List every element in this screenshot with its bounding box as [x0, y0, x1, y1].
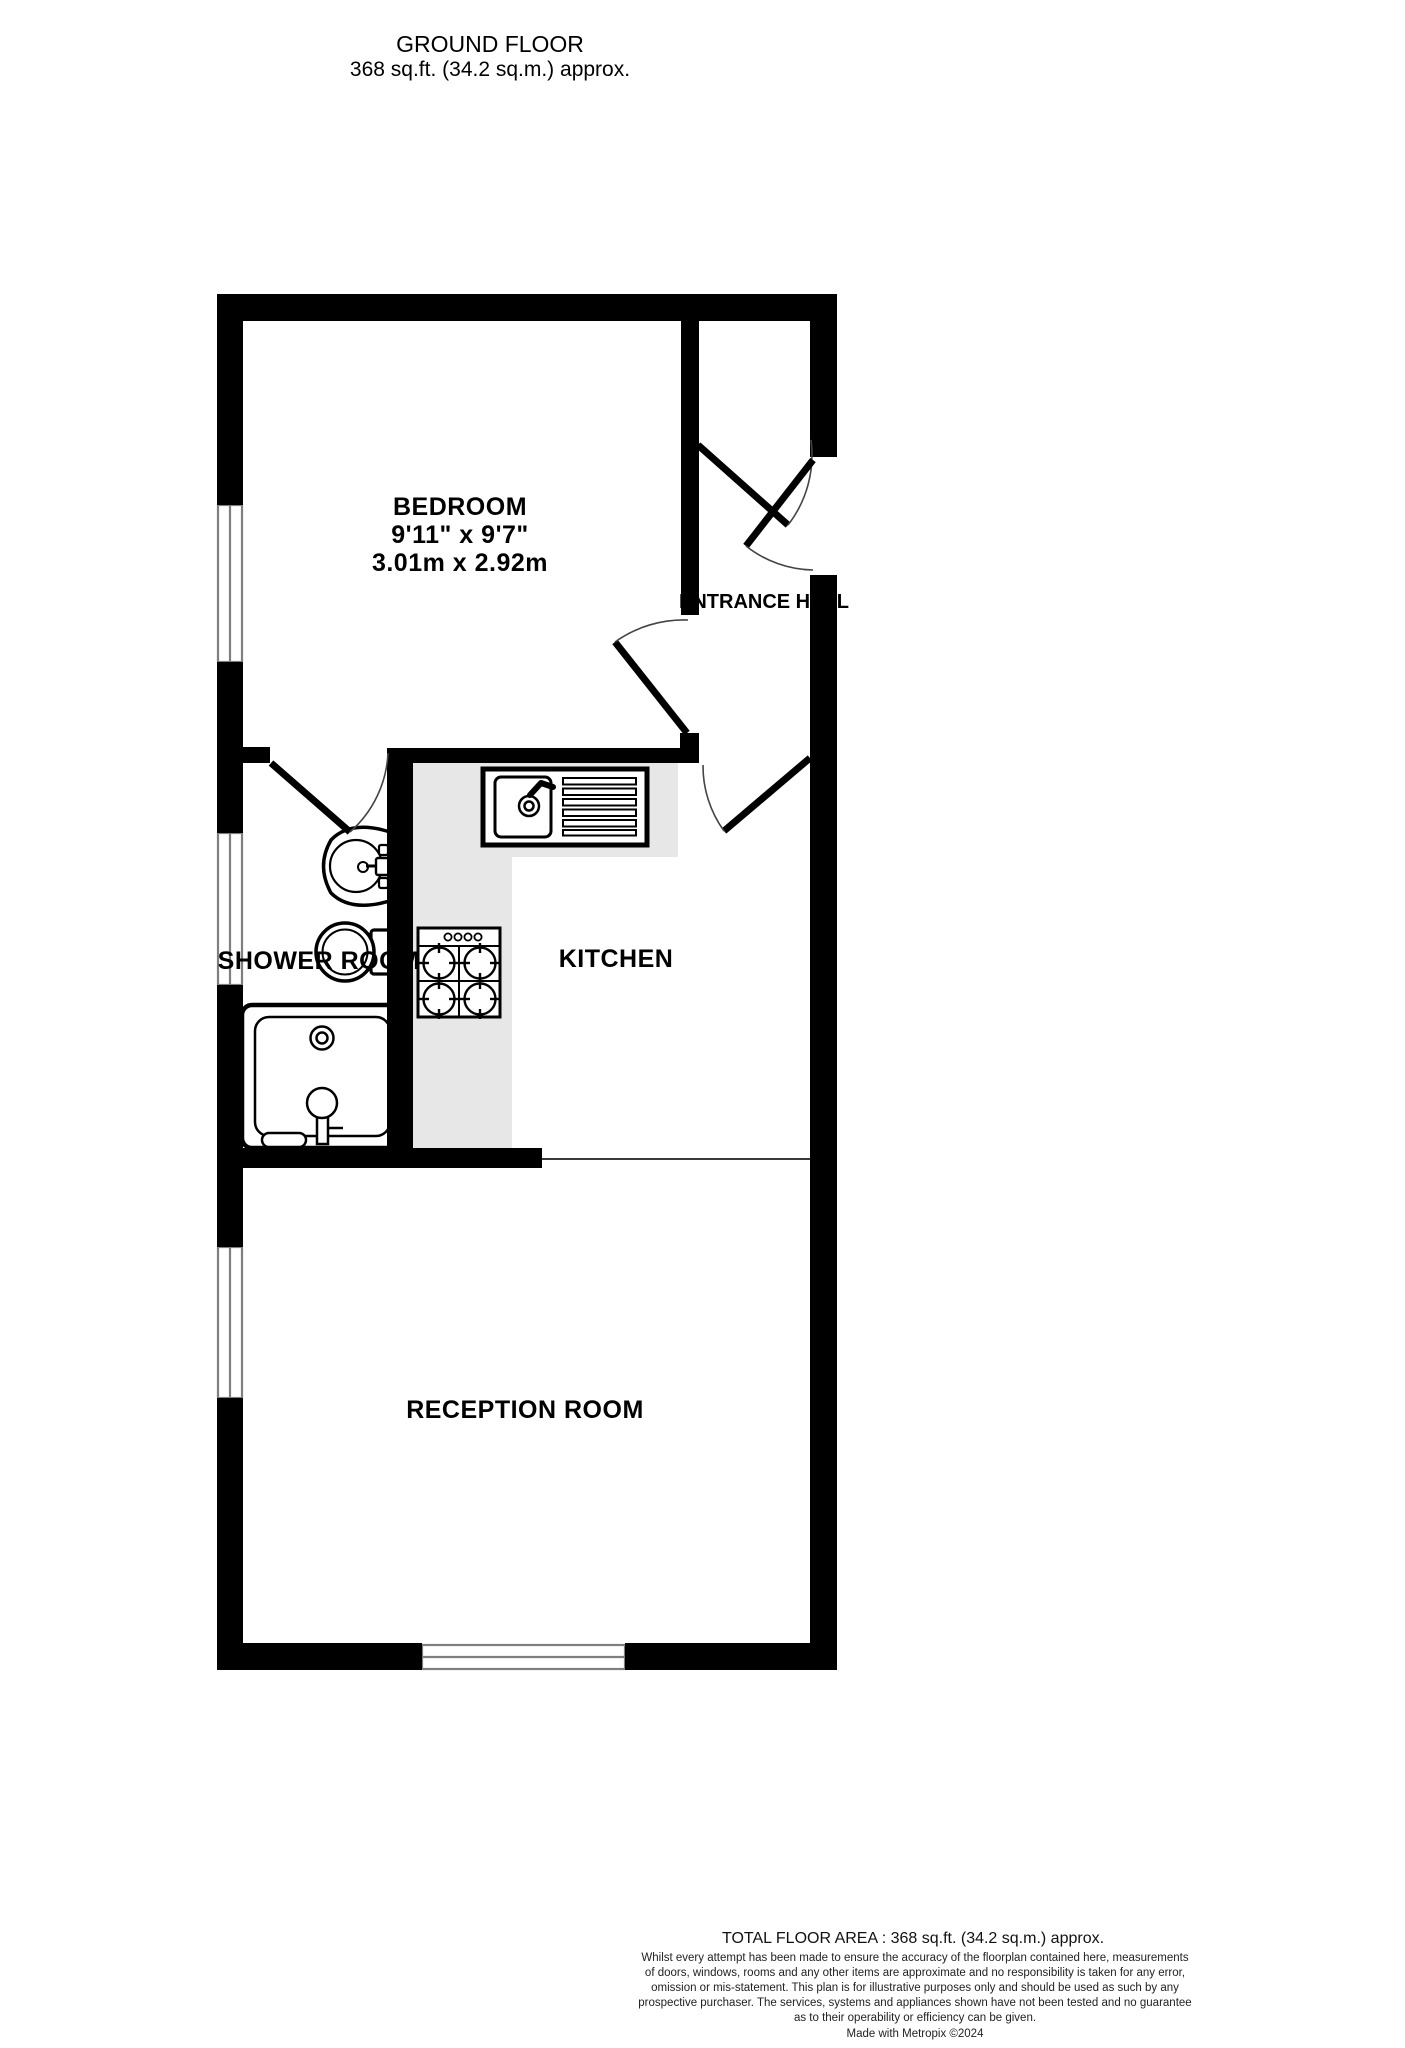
disclaimer-line: prospective purchaser. The services, sys…	[638, 1997, 1191, 2009]
window-reception-bottom-icon	[422, 1645, 625, 1669]
page-subtitle: 368 sq.ft. (34.2 sq.m.) approx.	[350, 58, 630, 81]
disclaimer-line: as to their operability or efficiency ca…	[794, 2012, 1036, 2024]
door-arc-front	[746, 546, 813, 570]
wall-bottom-right	[625, 1643, 837, 1670]
total-floor-area: TOTAL FLOOR AREA : 368 sq.ft. (34.2 sq.m…	[722, 1930, 1104, 1947]
door-leaf-kitchen	[724, 758, 810, 831]
floorplan-page: GROUND FLOOR 368 sq.ft. (34.2 sq.m.) app…	[0, 0, 1405, 2048]
disclaimer-line: Whilst every attempt has been made to en…	[641, 1952, 1188, 1964]
kitchen-sink-icon	[483, 769, 647, 845]
shower-tray-icon	[242, 1005, 403, 1148]
door-leaf-shower	[271, 763, 350, 832]
disclaimer-line: of doors, windows, rooms and any other i…	[645, 1967, 1185, 1979]
wall-shower-bottom	[217, 1148, 542, 1168]
door-leaf-front	[746, 460, 813, 546]
wall-shower-kitchen	[387, 748, 413, 1148]
wall-bedroom-kitchen	[387, 748, 681, 763]
door-arc-shower	[350, 753, 388, 832]
label-bedroom-dims-m: 3.01m x 2.92m	[372, 549, 548, 577]
washbasin-icon	[324, 827, 399, 905]
wall-bedroom-hall	[681, 321, 699, 615]
label-kitchen: KITCHEN	[559, 945, 674, 973]
window-reception-side-icon	[218, 1247, 242, 1398]
wall-bottom-left	[217, 1643, 422, 1670]
door-arc-bedroom	[615, 620, 688, 642]
wall-left-1	[217, 321, 243, 505]
metropix-credit: Made with Metropix ©2024	[847, 2028, 985, 2040]
wall-left-4	[217, 1398, 243, 1643]
wall-left-3	[217, 985, 243, 1247]
disclaimer: Whilst every attempt has been made to en…	[638, 1952, 1191, 2040]
wall-right-upper	[810, 321, 837, 457]
label-bedroom-dims-ft: 9'11" x 9'7"	[391, 521, 529, 549]
door-leaf-bedroom	[615, 642, 687, 733]
disclaimer-line: omission or mis-statement. This plan is …	[651, 1982, 1179, 1994]
floorplan-drawing: GROUND FLOOR 368 sq.ft. (34.2 sq.m.) app…	[0, 0, 1405, 2048]
hob-icon	[418, 928, 500, 1019]
wall-door-post	[680, 733, 699, 763]
wall-top	[217, 294, 837, 321]
page-title: GROUND FLOOR	[396, 31, 584, 57]
label-bedroom: BEDROOM	[393, 493, 527, 521]
soap-tray-icon	[262, 1133, 306, 1147]
door-arc-kitchen	[703, 765, 724, 831]
window-bedroom-icon	[218, 505, 242, 662]
label-reception-room: RECEPTION ROOM	[406, 1396, 644, 1424]
wall-shower-top-stub	[217, 747, 270, 763]
wall-right-lower	[810, 575, 837, 1643]
